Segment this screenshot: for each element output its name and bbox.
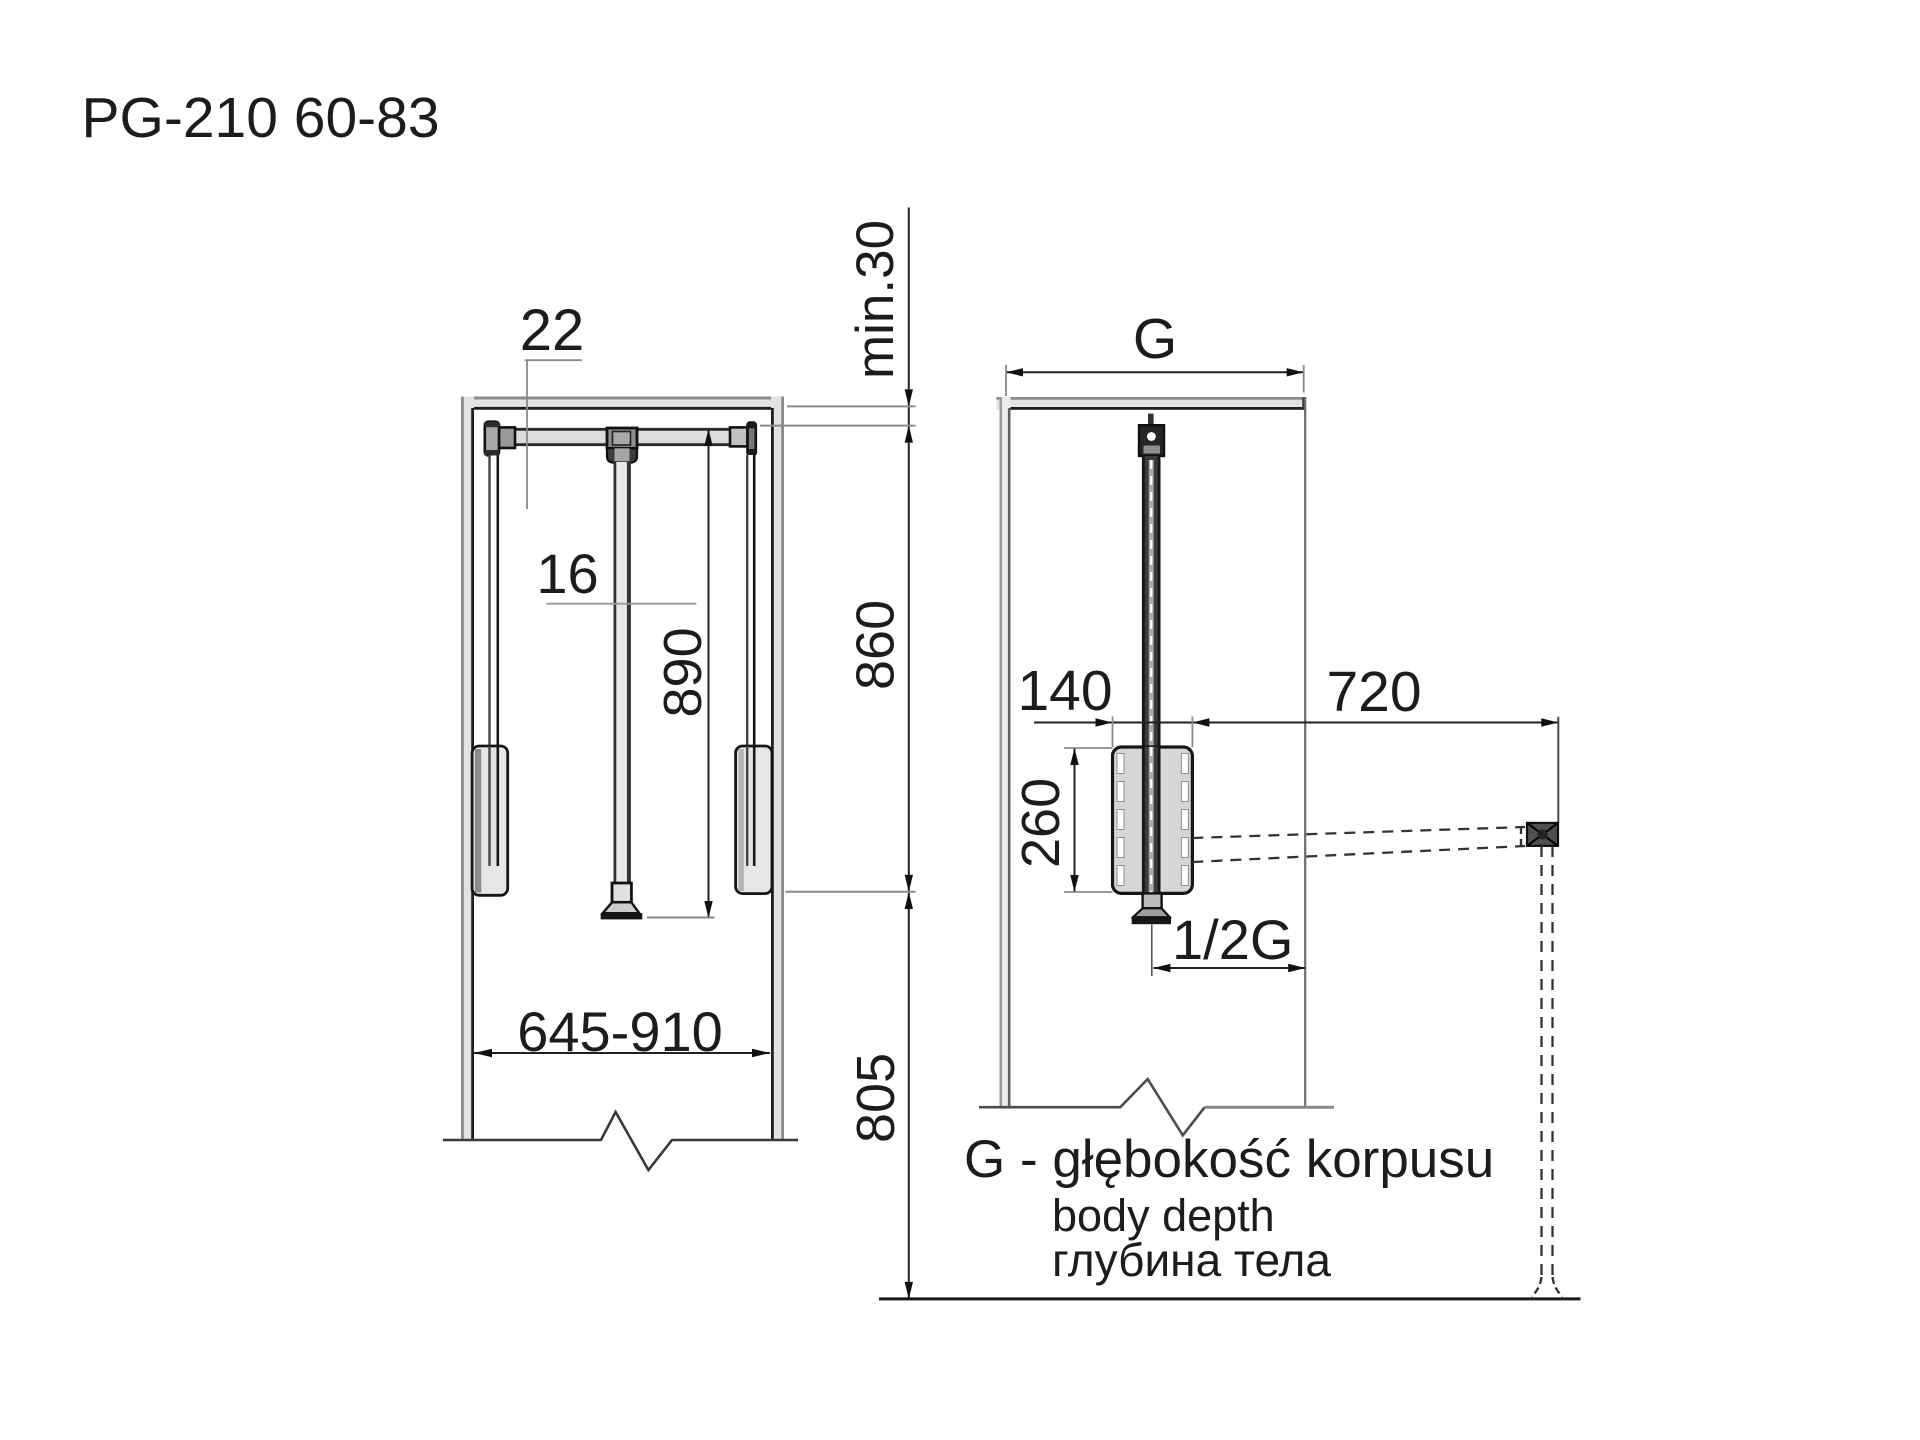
svg-text:G: G <box>1133 307 1177 371</box>
svg-text:22: 22 <box>520 298 585 363</box>
svg-text:890: 890 <box>653 627 713 717</box>
svg-text:min.30: min.30 <box>846 220 905 379</box>
svg-text:140: 140 <box>1017 659 1112 723</box>
svg-text:глубина тела: глубина тела <box>1052 1234 1331 1286</box>
svg-text:PG-210 60-83: PG-210 60-83 <box>82 86 440 150</box>
svg-text:860: 860 <box>846 600 906 690</box>
svg-text:G - głębokość korpusu: G - głębokość korpusu <box>964 1130 1494 1189</box>
svg-text:720: 720 <box>1326 660 1421 724</box>
svg-text:805: 805 <box>846 1053 906 1143</box>
svg-text:260: 260 <box>1011 778 1071 868</box>
svg-text:16: 16 <box>536 542 598 605</box>
svg-text:1/2G: 1/2G <box>1172 908 1293 971</box>
